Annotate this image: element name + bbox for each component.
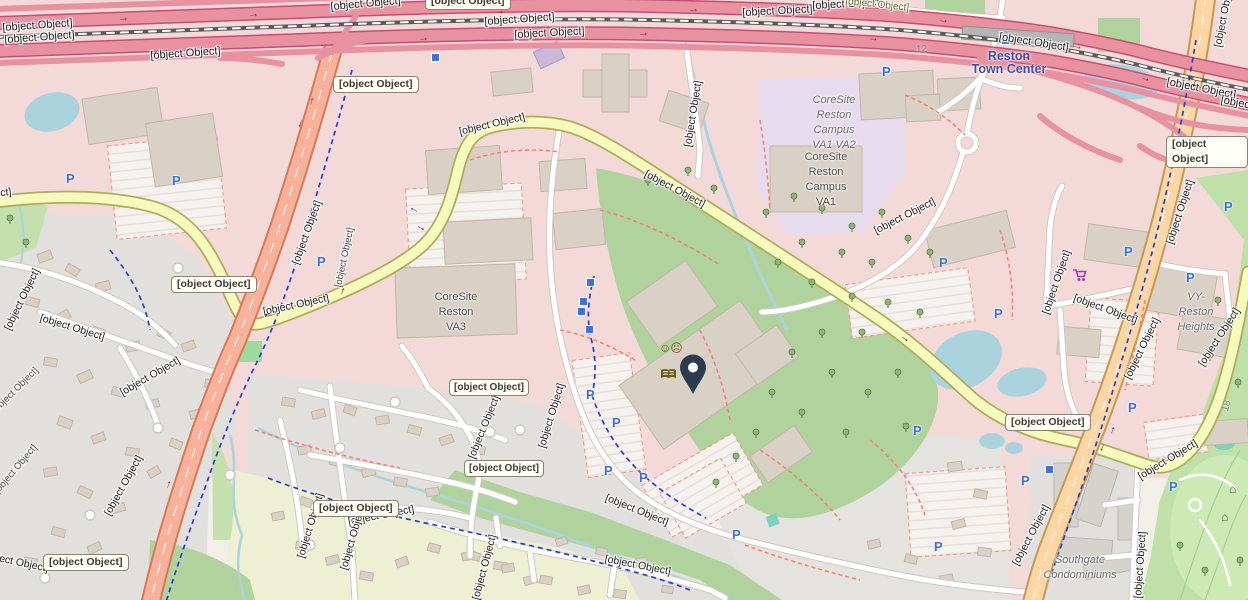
road-label: [object Object]	[347, 503, 415, 528]
coresite-campus-va1-label: CoreSite Reston Campus VA1	[805, 150, 848, 210]
oneway-arrow-icon: →	[118, 12, 130, 25]
road-label: [object Object]	[536, 382, 567, 450]
parking-icon: P	[934, 539, 943, 554]
road-label: [object Object]	[2, 17, 73, 34]
road-label: [object Object]	[1220, 94, 1248, 119]
road-label: [object Object]	[1166, 76, 1237, 101]
road-label: [object Object]	[458, 111, 526, 138]
oneway-arrow-icon: →	[334, 284, 349, 298]
metro-station-label: Reston Town Center	[968, 50, 1050, 76]
entrance-icon	[577, 307, 586, 316]
map-viewport[interactable]: Reston Town Center CoreSite Reston VA3 C…	[0, 0, 1248, 600]
road-label: [object Object]	[1164, 178, 1196, 246]
entrance-icon	[579, 297, 588, 306]
road-label: [object Object]	[872, 196, 937, 237]
oneway-arrow-icon: →	[294, 117, 309, 131]
oneway-arrow-icon: →	[638, 27, 649, 39]
road-label: [object Object]	[330, 0, 401, 13]
oneway-arrow-icon: →	[418, 32, 430, 45]
oneway-arrow-icon: →	[937, 13, 949, 26]
supermarket-cart-icon	[1072, 268, 1088, 282]
road-label: [object Object]	[682, 80, 704, 148]
oneway-arrow-icon: →	[406, 203, 421, 219]
parking-icon: P	[586, 387, 595, 402]
route-shield: [object Object]	[1166, 136, 1248, 168]
road-label: [object Object]	[742, 3, 813, 19]
road-label: [object Object]	[470, 533, 499, 600]
parking-icon: P	[913, 423, 922, 438]
parking-icon: P	[994, 306, 1003, 321]
oneway-arrow-icon: →	[1139, 71, 1153, 85]
road-label: [object Object]	[0, 186, 12, 205]
road-label: [object Object]	[118, 354, 182, 398]
parking-icon: P	[939, 255, 948, 270]
oneway-arrow-icon: →	[897, 330, 913, 346]
entrance-icon	[585, 325, 594, 334]
shelter-icon: ⌂	[1221, 510, 1228, 524]
parking-icon: P	[172, 173, 181, 188]
road-label: [object Object]	[0, 549, 50, 575]
road-label: [object Object]	[295, 492, 326, 560]
parking-icon: P	[1128, 400, 1137, 415]
road-label: [object Object]	[1010, 503, 1052, 568]
oneway-arrow-icon: →	[148, 46, 160, 59]
road-label: [object Object]	[1212, 0, 1237, 48]
road-label: [object Object]	[466, 394, 502, 461]
road-label: [object Object]	[1132, 531, 1149, 599]
route-shield: [object Object]	[449, 379, 529, 396]
road-label: [object Object]	[484, 11, 555, 28]
road-label: [object Object]	[338, 503, 368, 571]
labels-overlay: Reston Town Center CoreSite Reston VA3 C…	[0, 0, 1248, 600]
library-book-icon	[660, 368, 677, 381]
route-shield: [object Object]	[333, 76, 419, 93]
road-label: [object Object]	[1122, 316, 1162, 382]
oneway-arrow-icon: →	[1071, 39, 1085, 53]
road-label: [object Object]	[0, 442, 39, 496]
station-icon	[1001, 36, 1010, 45]
oneway-arrow-icon: →	[494, 5, 506, 18]
road-label: [object Object]	[1136, 437, 1200, 482]
parking-icon: P	[612, 415, 621, 430]
parking-icon: P	[317, 254, 326, 269]
route-shield: [object Object]	[1005, 414, 1091, 431]
road-label: [object Object]	[642, 168, 707, 210]
parking-icon: P	[639, 470, 648, 485]
map-pin-marker[interactable]	[677, 354, 711, 396]
coresite-campus-va1-va2-label: CoreSite Reston Campus VA1 VA2	[812, 93, 855, 153]
parking-icon: P	[882, 64, 891, 79]
road-label: [object Object]	[150, 45, 221, 62]
road-label: [object Object]	[1072, 292, 1139, 326]
road-label: [object Object]	[2, 267, 42, 333]
road-label: [object Object]	[1196, 306, 1243, 369]
vy-reston-heights-label: VY-Reston Heights	[1170, 290, 1222, 335]
oneway-arrow-icon: →	[160, 477, 175, 491]
route-shield: [object Object]	[313, 500, 399, 517]
oneway-arrow-icon: →	[248, 8, 260, 21]
road-label: [object Object]	[290, 199, 324, 266]
road-label: [object Object]	[1040, 249, 1073, 316]
parking-icon: P	[66, 171, 75, 186]
route-shield: [object Object]	[171, 276, 257, 293]
parking-icon: P	[1169, 479, 1178, 494]
entrance-icon	[586, 278, 595, 287]
oneway-arrow-icon: →	[414, 219, 429, 235]
parking-icon: P	[1021, 473, 1030, 488]
coresite-va3-label: CoreSite Reston VA3	[435, 290, 478, 335]
route-shield: [object Object]	[43, 554, 129, 571]
road-label: [object Object]	[812, 0, 883, 12]
oneway-arrow-icon: →	[1096, 441, 1111, 456]
golf-hole-18-label: 18	[1220, 399, 1233, 412]
road-label: [object Object]	[604, 553, 672, 578]
oneway-arrow-icon: →	[1188, 77, 1203, 92]
road-label: [object Object]	[998, 31, 1069, 54]
road-label: [object Object]	[333, 227, 356, 289]
oneway-arrow-icon: →	[688, 3, 699, 15]
parking-icon: P	[1124, 244, 1133, 259]
route-shield: [object Object]	[464, 460, 544, 477]
oneway-arrow-icon: →	[868, 32, 880, 45]
road-label: [object Object]	[38, 312, 106, 343]
southgate-condominiums-label: Southgate Condominiums	[1043, 553, 1116, 583]
oneway-arrow-icon: →	[303, 94, 317, 108]
road-label: [object Object]	[262, 292, 330, 318]
parking-icon: P	[604, 463, 613, 478]
road-label: [object Object]	[0, 365, 41, 416]
road-label: [object Object]	[604, 492, 671, 528]
oneway-arrow-icon: →	[1104, 423, 1119, 438]
parking-icon: P	[1186, 270, 1195, 285]
parking-icon: P	[1224, 199, 1233, 214]
road-label: [object Object]	[4, 29, 75, 46]
route-shield: [object Object]	[425, 0, 511, 10]
oneway-arrow-icon: →	[1019, 49, 1032, 63]
oneway-arrow-icon: →	[262, 309, 274, 322]
road-label: [object Object]	[514, 25, 585, 41]
entrance-icon	[431, 53, 440, 62]
road-label: [object Object]	[102, 453, 145, 518]
shelter-icon: ⌂	[1229, 482, 1236, 496]
parking-icon: P	[732, 527, 741, 542]
route-marker-12: 12	[916, 44, 927, 55]
entrance-icon	[1045, 465, 1054, 474]
road-label: [object Object]	[845, 0, 910, 14]
theatre-masks-icon: ☺☹	[659, 341, 682, 355]
